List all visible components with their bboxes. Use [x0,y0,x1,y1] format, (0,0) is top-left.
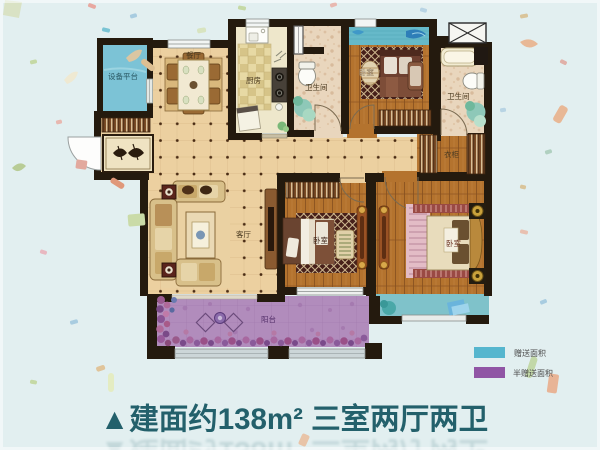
svg-text:阳台: 阳台 [261,314,276,324]
svg-text:半赠送面积: 半赠送面积 [513,368,553,378]
svg-text:衣柜: 衣柜 [444,149,459,159]
svg-text:卧室: 卧室 [359,67,374,77]
svg-text:设备平台: 设备平台 [108,71,138,81]
svg-text:卧室: 卧室 [313,235,328,245]
svg-text:卧室: 卧室 [446,238,461,248]
svg-text:卫生间: 卫生间 [447,91,470,101]
svg-text:客厅: 客厅 [236,229,251,239]
svg-text:餐厅: 餐厅 [186,51,201,60]
svg-text:▲建面约138m² 三室两厅两卫: ▲建面约138m² 三室两厅两卫 [100,402,488,436]
svg-text:赠送面积: 赠送面积 [514,348,546,358]
svg-text:厨房: 厨房 [246,75,261,85]
svg-text:卫生间: 卫生间 [305,82,328,92]
